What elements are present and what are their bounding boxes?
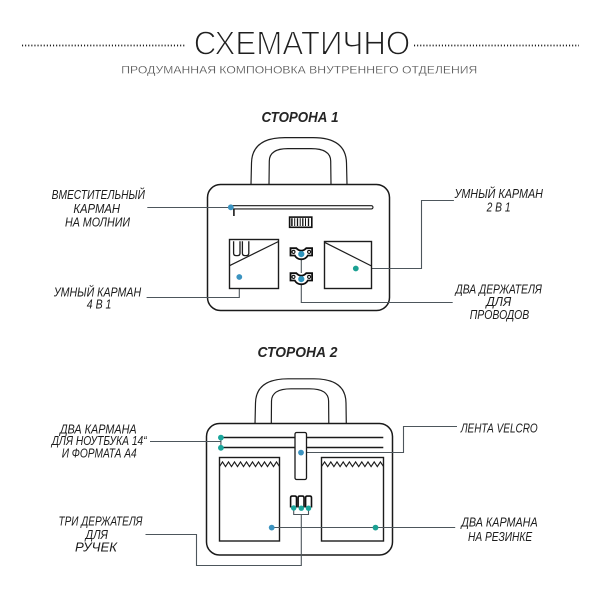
svg-text:СХЕМАТИЧНО: СХЕМАТИЧНО — [194, 25, 411, 62]
svg-text:НА РЕЗИНКЕ: НА РЕЗИНКЕ — [468, 530, 533, 544]
svg-text:ПРОДУМАННАЯ КОМПОНОВКА ВНУТРЕН: ПРОДУМАННАЯ КОМПОНОВКА ВНУТРЕННЕГО ОТДЕЛ… — [121, 65, 477, 77]
svg-text:СТОРОНА 2: СТОРОНА 2 — [258, 344, 339, 361]
svg-text:4 В 1: 4 В 1 — [87, 298, 112, 312]
svg-text:РУЧЕК: РУЧЕК — [75, 541, 118, 555]
svg-text:ЛЕНТА VELCRO: ЛЕНТА VELCRO — [460, 421, 538, 435]
svg-text:ВМЕСТИТЕЛЬНЫЙ: ВМЕСТИТЕЛЬНЫЙ — [52, 186, 146, 202]
svg-text:ПРОВОДОВ: ПРОВОДОВ — [470, 308, 530, 322]
svg-text:И ФОРМАТА А4: И ФОРМАТА А4 — [62, 447, 137, 461]
svg-text:2 В 1: 2 В 1 — [486, 201, 511, 215]
svg-text:ТРИ ДЕРЖАТЕЛЯ: ТРИ ДЕРЖАТЕЛЯ — [59, 515, 143, 529]
svg-text:УМНЫЙ КАРМАН: УМНЫЙ КАРМАН — [454, 185, 544, 201]
svg-text:СТОРОНА 1: СТОРОНА 1 — [262, 109, 339, 126]
svg-text:ДВА КАРМАНА: ДВА КАРМАНА — [460, 515, 538, 529]
svg-text:КАРМАН: КАРМАН — [73, 202, 121, 216]
svg-text:НА МОЛНИИ: НА МОЛНИИ — [65, 216, 131, 230]
